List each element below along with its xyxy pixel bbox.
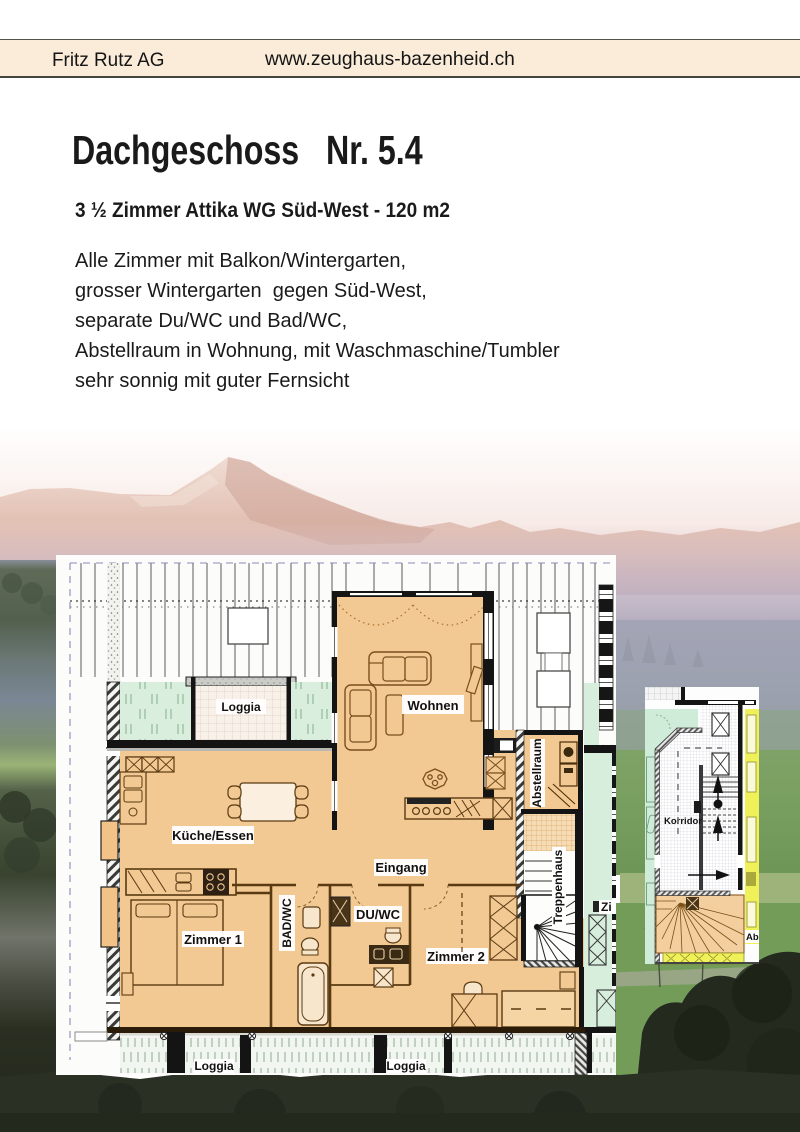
svg-text:Zi: Zi — [601, 900, 612, 914]
svg-text:Loggia: Loggia — [386, 1059, 426, 1073]
svg-text:Loggia: Loggia — [194, 1059, 234, 1073]
svg-text:Abstellraum: Abstellraum — [530, 738, 544, 807]
svg-text:Küche/Essen: Küche/Essen — [172, 828, 254, 843]
svg-text:BAD/WC: BAD/WC — [280, 898, 294, 948]
svg-text:Zimmer 2: Zimmer 2 — [427, 949, 485, 964]
svg-text:Loggia: Loggia — [221, 700, 261, 714]
svg-text:Treppenhaus: Treppenhaus — [551, 849, 565, 924]
svg-text:Ab: Ab — [746, 932, 759, 943]
svg-text:Eingang: Eingang — [375, 860, 426, 875]
svg-text:Korridor: Korridor — [664, 816, 702, 827]
svg-text:Zimmer 1: Zimmer 1 — [184, 932, 242, 947]
svg-text:Wohnen: Wohnen — [407, 698, 458, 713]
svg-text:DU/WC: DU/WC — [356, 907, 401, 922]
